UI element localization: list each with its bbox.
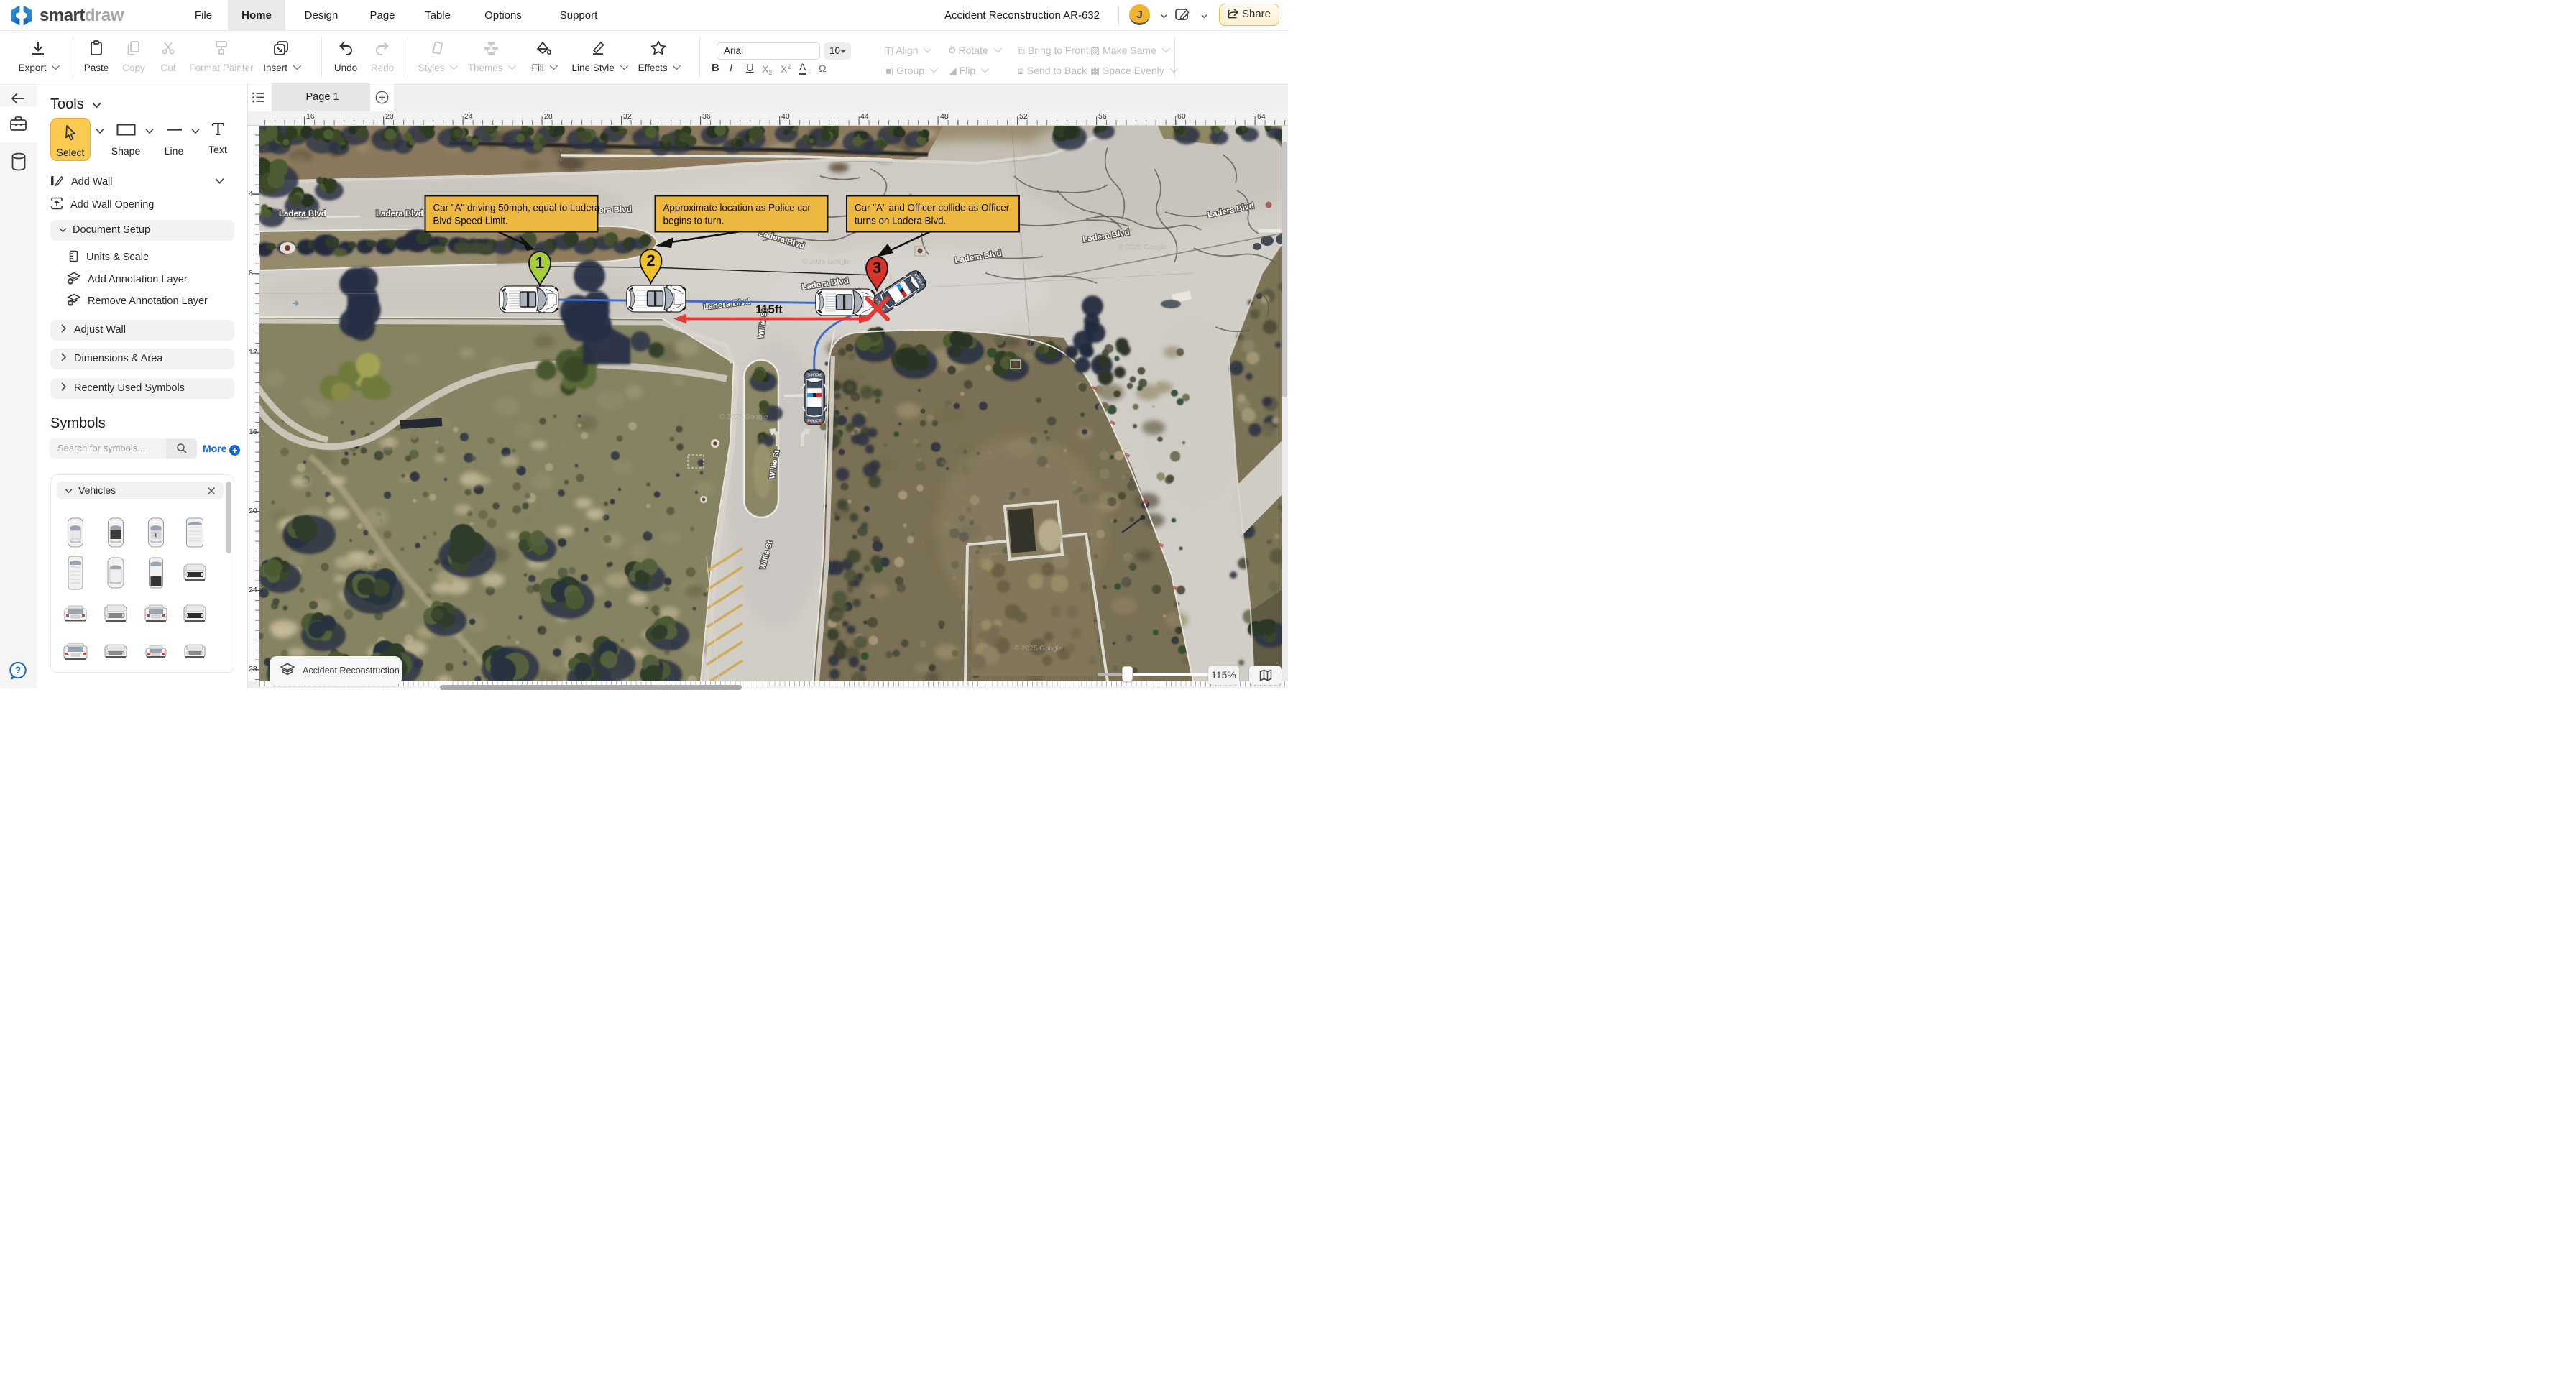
svg-text:Ladera Blvd: Ladera Blvd: [279, 210, 326, 218]
svg-text:Blvd Speed Limit.: Blvd Speed Limit.: [433, 216, 508, 226]
svg-text:2: 2: [646, 252, 655, 270]
svg-text:Ladera Blvd: Ladera Blvd: [376, 210, 423, 218]
svg-text:begins to turn.: begins to turn.: [663, 216, 724, 226]
svg-text:?: ?: [15, 665, 21, 676]
svg-text:Car "A" and Officer collide as: Car "A" and Officer collide as Officer: [855, 203, 1010, 213]
svg-text:Car "A" driving 50mph, equal t: Car "A" driving 50mph, equal to Ladera: [433, 203, 601, 213]
svg-text:© 2025 Google: © 2025 Google: [1118, 244, 1167, 252]
svg-text:© 2025 Google: © 2025 Google: [1014, 645, 1063, 653]
svg-text:© 2025 Google: © 2025 Google: [719, 413, 768, 421]
svg-text:Approximate location as Police: Approximate location as Police car: [663, 203, 811, 213]
svg-text:3: 3: [873, 259, 881, 277]
svg-text:turns on Ladera Blvd.: turns on Ladera Blvd.: [855, 216, 946, 226]
svg-text:© 2025 Google: © 2025 Google: [802, 258, 851, 266]
svg-text:115ft: 115ft: [755, 303, 783, 316]
svg-text:1: 1: [535, 254, 544, 272]
